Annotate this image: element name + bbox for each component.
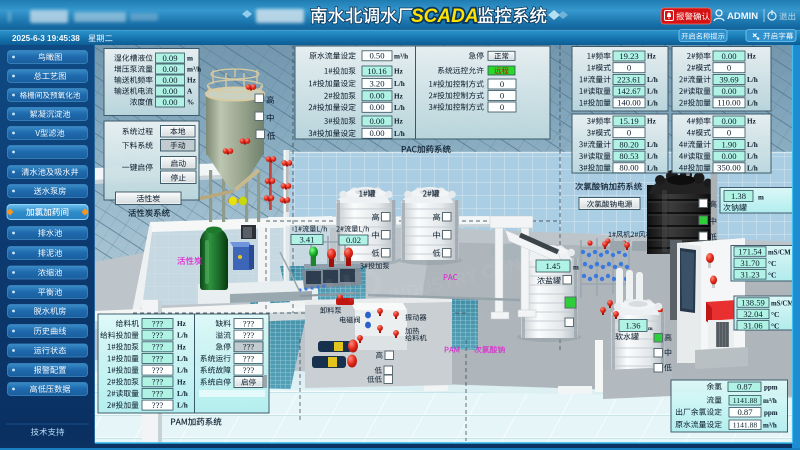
svg-text:0: 0: [500, 90, 504, 100]
svg-text:110.00: 110.00: [717, 98, 740, 108]
svg-text:1.38: 1.38: [731, 191, 746, 201]
svg-text:L/h: L/h: [177, 402, 188, 410]
svg-text:0: 0: [727, 63, 731, 73]
svg-text:Hz: Hz: [187, 77, 197, 85]
svg-text:31.23: 31.23: [740, 269, 759, 279]
svg-text:L/h: L/h: [747, 153, 758, 161]
svg-text:°C: °C: [768, 259, 776, 268]
svg-text:1141.88: 1141.88: [733, 396, 758, 405]
svg-text:39.69: 39.69: [719, 74, 738, 84]
svg-text:m: m: [648, 326, 653, 332]
svg-text:L/h: L/h: [747, 76, 758, 84]
svg-text:Hz: Hz: [394, 118, 404, 126]
svg-text:0.50: 0.50: [369, 51, 384, 61]
svg-text:L/h: L/h: [747, 99, 758, 107]
svg-text:mS/CM: mS/CM: [771, 301, 794, 308]
svg-text:Hz: Hz: [177, 320, 187, 328]
svg-text:0.87: 0.87: [737, 407, 753, 417]
svg-text:L/h: L/h: [647, 99, 658, 107]
svg-text:142.67: 142.67: [617, 86, 641, 96]
svg-text:???: ???: [152, 318, 164, 328]
svg-text:3.41: 3.41: [299, 234, 314, 244]
svg-text:Hz: Hz: [177, 378, 187, 386]
svg-text:L/h: L/h: [747, 164, 758, 172]
svg-text:171.54: 171.54: [738, 247, 762, 257]
svg-text:0.00: 0.00: [721, 151, 736, 161]
svg-text:???: ???: [152, 342, 164, 352]
svg-text:Hz: Hz: [747, 118, 757, 126]
svg-text:ppm: ppm: [764, 409, 778, 417]
svg-text:0.87: 0.87: [737, 382, 753, 392]
svg-text:???: ???: [152, 330, 164, 340]
svg-text:138.59: 138.59: [741, 298, 765, 308]
svg-text:L/h: L/h: [177, 355, 188, 363]
svg-text:32.04: 32.04: [743, 309, 763, 319]
svg-text:223.61: 223.61: [617, 74, 641, 84]
svg-text:140.00: 140.00: [617, 98, 641, 108]
svg-text:???: ???: [243, 365, 255, 375]
svg-text:0.00: 0.00: [721, 86, 736, 96]
svg-text:0.00: 0.00: [162, 75, 177, 85]
svg-text:???: ???: [243, 342, 255, 352]
svg-text:0.00: 0.00: [162, 97, 177, 107]
svg-text:0.00: 0.00: [369, 102, 384, 112]
svg-text:L/h: L/h: [647, 76, 658, 84]
svg-text:Hz: Hz: [647, 53, 657, 61]
svg-text:L/h: L/h: [647, 141, 658, 149]
svg-text:0.00: 0.00: [369, 116, 384, 126]
svg-text:L/h: L/h: [177, 367, 188, 375]
svg-text:1.90: 1.90: [721, 139, 736, 149]
svg-text:Hz: Hz: [747, 53, 757, 61]
svg-text:L/h: L/h: [394, 80, 405, 88]
svg-text:0.02: 0.02: [346, 235, 361, 245]
svg-text:31.70: 31.70: [740, 258, 759, 268]
svg-text:80.20: 80.20: [619, 139, 638, 149]
svg-text:0.00: 0.00: [162, 86, 177, 96]
svg-text:L/h: L/h: [647, 164, 658, 172]
svg-text:L/h: L/h: [747, 141, 758, 149]
svg-text:Hz: Hz: [394, 92, 404, 100]
svg-text:0.00: 0.00: [162, 64, 177, 74]
svg-text:80.53: 80.53: [619, 151, 638, 161]
svg-text:10.16: 10.16: [367, 66, 387, 76]
svg-text:???: ???: [243, 353, 255, 363]
svg-text:15.19: 15.19: [619, 116, 638, 126]
svg-text:Hz: Hz: [394, 68, 404, 76]
svg-text:%: %: [187, 99, 194, 107]
svg-text:1.36: 1.36: [625, 320, 641, 330]
svg-text:°C: °C: [768, 270, 776, 279]
svg-text:m: m: [187, 55, 193, 63]
svg-text:mS/CM: mS/CM: [768, 250, 791, 257]
svg-text:0.00: 0.00: [721, 116, 736, 126]
svg-text:L/h: L/h: [747, 88, 758, 96]
svg-text:???: ???: [152, 353, 164, 363]
svg-text:0: 0: [727, 128, 731, 138]
svg-text:0: 0: [627, 128, 631, 138]
svg-text:1.45: 1.45: [545, 261, 560, 271]
svg-text:m: m: [758, 194, 764, 202]
svg-text:80.00: 80.00: [619, 163, 638, 173]
svg-text:0.00: 0.00: [721, 51, 736, 61]
svg-text:2025-6-3 19:45:38: 2025-6-3 19:45:38: [12, 34, 80, 43]
svg-text:L/h: L/h: [177, 390, 188, 398]
svg-text:31.06: 31.06: [743, 320, 763, 330]
svg-text:L/h: L/h: [394, 130, 405, 138]
svg-text:°C: °C: [771, 321, 779, 330]
svg-text:0: 0: [627, 63, 631, 73]
svg-text:ppm: ppm: [764, 383, 778, 391]
svg-text:???: ???: [152, 388, 164, 398]
svg-text:ADMIN: ADMIN: [727, 11, 758, 22]
svg-text:???: ???: [243, 330, 255, 340]
svg-text:°C: °C: [771, 310, 779, 319]
svg-text:350.00: 350.00: [717, 163, 741, 173]
svg-text:A: A: [187, 88, 193, 96]
svg-text:Hz: Hz: [647, 118, 657, 126]
svg-text:L/h: L/h: [394, 104, 405, 112]
svg-text:0.09: 0.09: [162, 53, 177, 63]
svg-text:m³/h: m³/h: [763, 397, 777, 405]
svg-text:m³/h: m³/h: [394, 52, 408, 60]
svg-text:0: 0: [500, 79, 504, 89]
svg-text:m³/h: m³/h: [187, 66, 201, 74]
svg-text:1141.88: 1141.88: [733, 420, 758, 429]
svg-text:SCADA: SCADA: [411, 6, 479, 27]
svg-text:L/h: L/h: [647, 88, 658, 96]
svg-text:???: ???: [152, 400, 164, 410]
svg-text:L/h: L/h: [647, 153, 658, 161]
svg-text:19.23: 19.23: [619, 51, 638, 61]
svg-text:m: m: [573, 264, 579, 272]
svg-text:Hz: Hz: [177, 343, 187, 351]
svg-text:L/h: L/h: [177, 332, 188, 340]
svg-text:0.00: 0.00: [369, 128, 384, 138]
svg-text:???: ???: [243, 318, 255, 328]
svg-text:???: ???: [152, 377, 164, 387]
svg-text:0: 0: [500, 102, 504, 112]
svg-text:3.20: 3.20: [369, 78, 384, 88]
svg-text:???: ???: [152, 365, 164, 375]
svg-text:0.00: 0.00: [369, 91, 384, 101]
svg-text:m³/h: m³/h: [763, 421, 777, 429]
